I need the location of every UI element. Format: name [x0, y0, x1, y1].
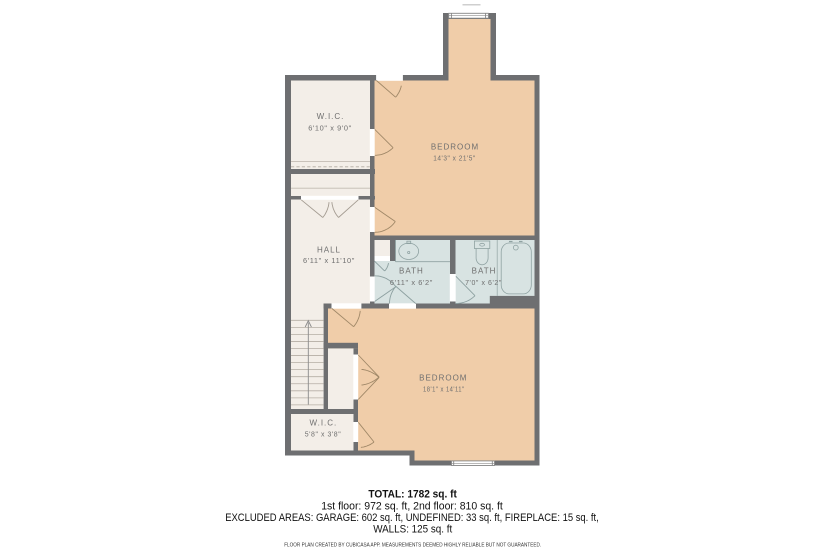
svg-text:1st floor: 972 sq. ft, 2nd flo: 1st floor: 972 sq. ft, 2nd floor: 810 sq…	[321, 500, 503, 512]
svg-text:W.I.C.: W.I.C.	[310, 418, 338, 427]
svg-text:BATH: BATH	[472, 267, 497, 276]
svg-text:6'11" x 6'2": 6'11" x 6'2"	[390, 278, 433, 287]
svg-text:6'10" x 9'0": 6'10" x 9'0"	[308, 124, 352, 133]
svg-text:18'1" x 14'11": 18'1" x 14'11"	[423, 385, 465, 394]
svg-text:7'0" x 6'2": 7'0" x 6'2"	[465, 278, 502, 287]
svg-text:5'8" x 3'8": 5'8" x 3'8"	[305, 430, 342, 439]
svg-text:FLOOR PLAN CREATED BY CUBICASA: FLOOR PLAN CREATED BY CUBICASA APP. MEAS…	[284, 542, 541, 548]
svg-text:BEDROOM: BEDROOM	[419, 374, 467, 383]
svg-text:6'11" x 11'10": 6'11" x 11'10"	[303, 256, 355, 265]
svg-text:BEDROOM: BEDROOM	[431, 143, 479, 152]
svg-text:W.I.C.: W.I.C.	[317, 112, 345, 121]
svg-text:HALL: HALL	[317, 245, 341, 254]
svg-text:14'3" x 21'5": 14'3" x 21'5"	[433, 154, 475, 163]
svg-text:WALLS: 125 sq. ft: WALLS: 125 sq. ft	[373, 523, 452, 535]
svg-text:TOTAL: 1782 sq. ft: TOTAL: 1782 sq. ft	[368, 488, 457, 500]
svg-text:BATH: BATH	[399, 267, 424, 276]
